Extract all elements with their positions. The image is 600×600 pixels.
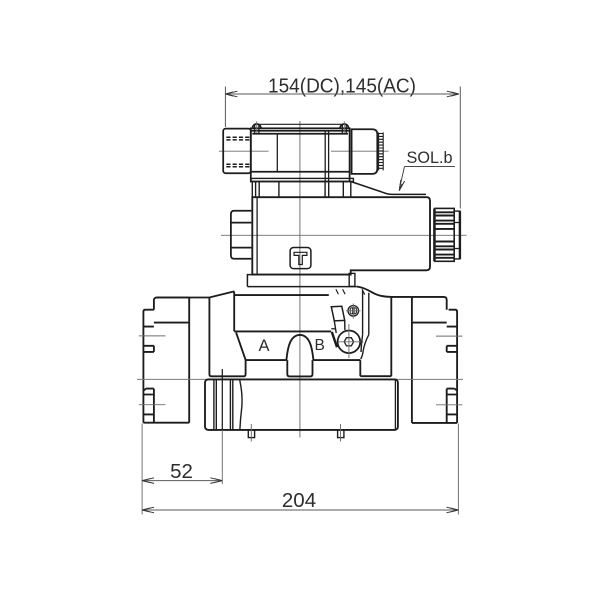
svg-text:SOL.b: SOL.b bbox=[407, 148, 453, 167]
svg-text:204: 204 bbox=[282, 489, 316, 512]
svg-text:52: 52 bbox=[170, 460, 193, 483]
svg-text:B: B bbox=[315, 337, 325, 354]
svg-text:A: A bbox=[259, 337, 270, 355]
